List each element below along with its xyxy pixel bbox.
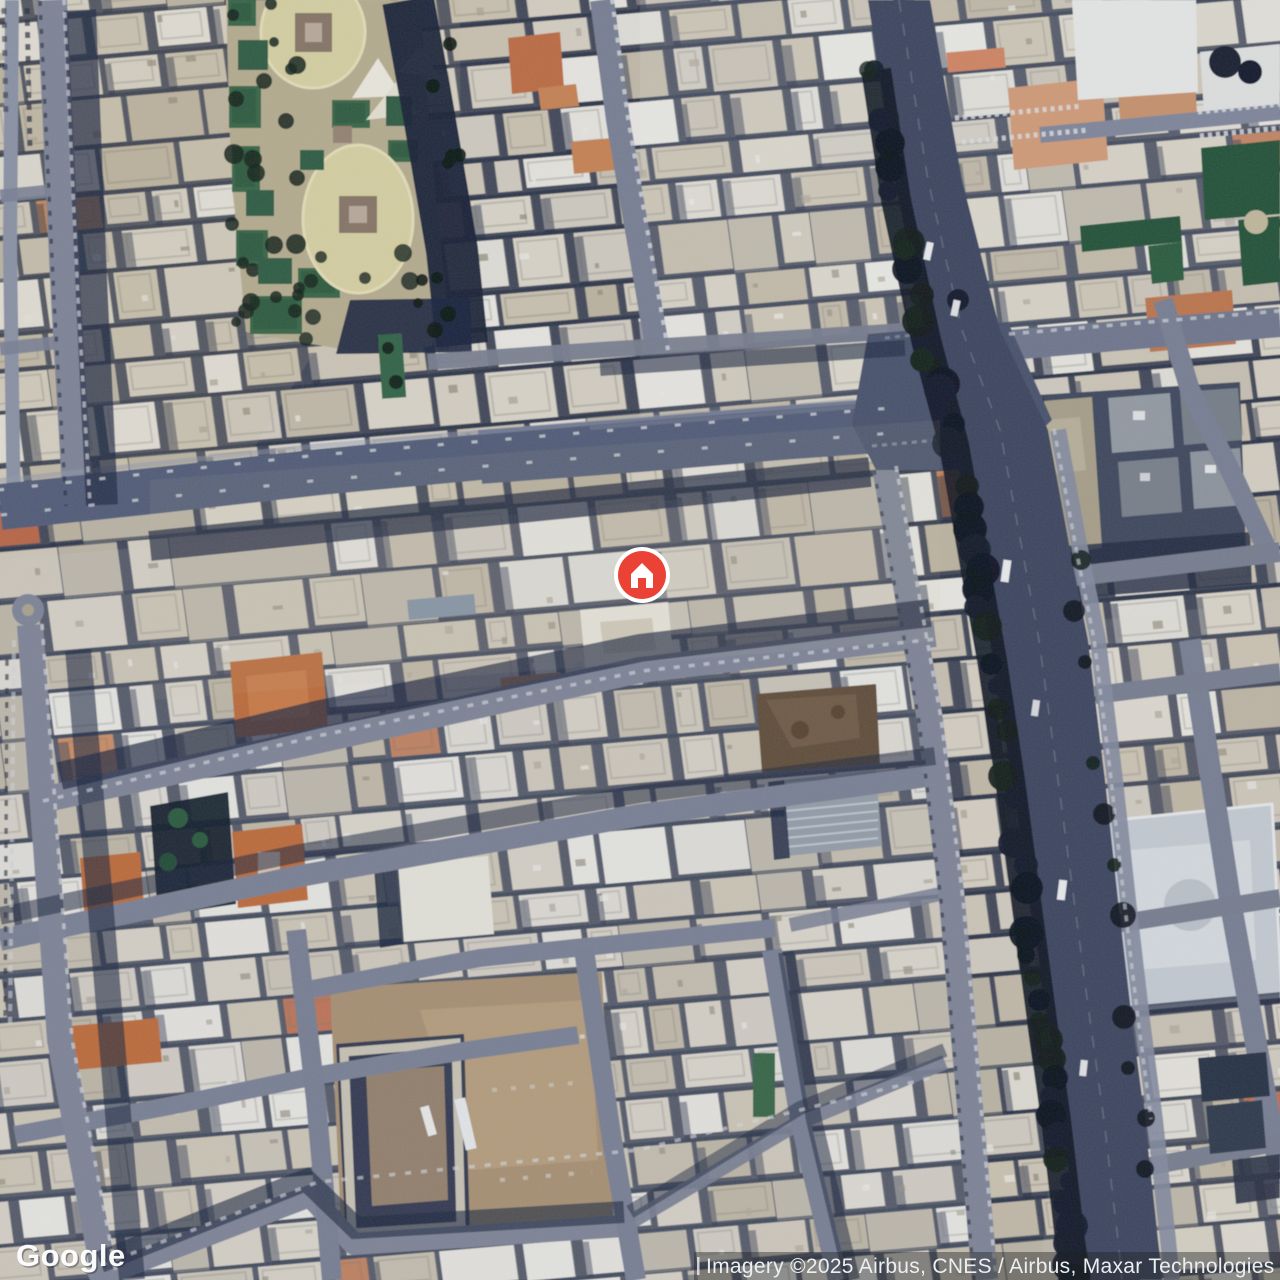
svg-text:Google: Google [16, 1238, 126, 1273]
svg-text:Imagery ©2025 Airbus, CNES / A: Imagery ©2025 Airbus, CNES / Airbus, Max… [706, 1255, 1275, 1278]
